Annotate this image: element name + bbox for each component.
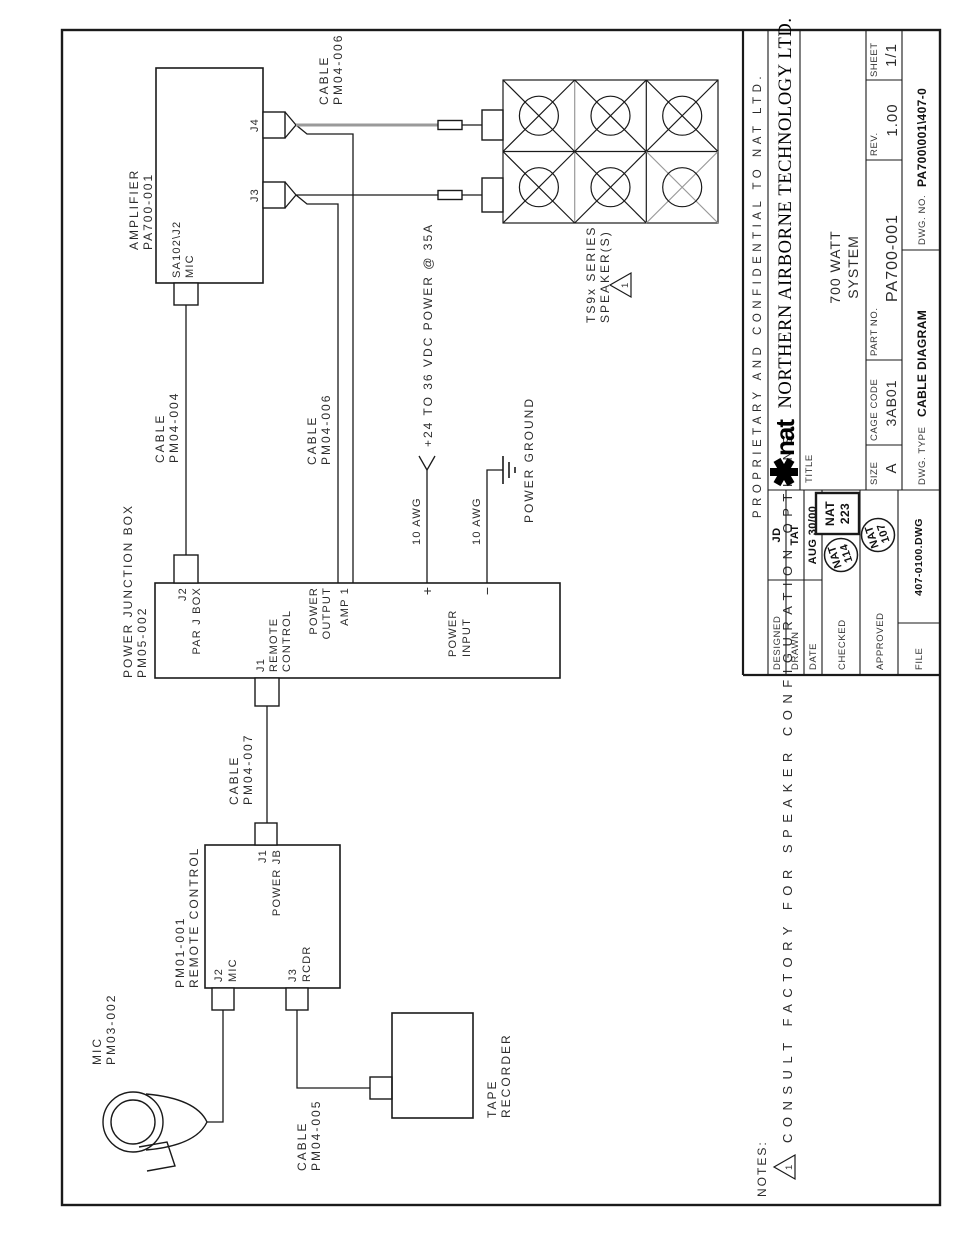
speakers-label-2: SPEAKER(S) (598, 230, 612, 323)
part-no-label: PART NO. (869, 307, 880, 356)
stamp-nat223-line1: NAT (823, 501, 837, 526)
mic-label-2: PM03-002 (104, 994, 118, 1065)
stamp-checked-nat223: NAT 223 (816, 493, 859, 534)
speaker-connector-1 (482, 110, 503, 140)
page: AMPLIFIER PA700-001 SA102\J2 MIC J3 J4 P… (0, 0, 954, 1235)
rev-label: REV. (869, 132, 880, 156)
title-block-outline (743, 30, 940, 675)
cable-pm04-006-wire-a (296, 195, 338, 583)
remote-label-2: REMOTE CONTROL (187, 847, 201, 988)
title-label: TITLE (804, 454, 815, 483)
dwg-no-value: PA700\001\407-0 (915, 88, 929, 187)
junction-box-label-1: POWER JUNCTION BOX (121, 504, 135, 678)
junction-j2-connector (174, 555, 198, 583)
amplifier-j4-connector (263, 112, 285, 138)
amplifier-mic-connector (174, 283, 198, 305)
amplifier-j3-connector (263, 182, 285, 208)
power-ground-wire (487, 470, 503, 583)
amplifier-part-label: PA700-001 (141, 173, 155, 250)
cable-pm04-006-amp-label-1: CABLE (317, 56, 331, 105)
file-label: FILE (914, 648, 925, 670)
drawing-title-2: SYSTEM (845, 235, 861, 299)
cable-pm04-007-label-1: CABLE (227, 756, 241, 805)
junction-plus-terminal: + (419, 587, 435, 595)
amplifier-j4-label: J4 (249, 118, 261, 132)
junction-j1-label-3: CONTROL (281, 610, 293, 672)
remote-j2-label-1: J2 (213, 968, 225, 982)
speakers: TS9x SERIES SPEAKER(S) 1 (482, 80, 718, 323)
size-label: SIZE (869, 461, 880, 485)
cable-pm04-006-amp-label-2: PM04-006 (331, 34, 345, 105)
company-name: NORTHERN AIRBORNE TECHNOLOGY LTD. (776, 17, 796, 408)
tape-label-1: TAPE (485, 1080, 499, 1118)
approved-label: APPROVED (875, 612, 886, 670)
cable-pm04-006-wire-b (296, 125, 353, 583)
junction-output-label-1: POWER (308, 587, 320, 635)
file-value: 407-0100.DWG (913, 518, 925, 596)
mic-cable (207, 1010, 223, 1122)
inline-splice-j3 (438, 191, 462, 200)
stamp-nat223-line2: 223 (838, 503, 852, 524)
junction-j1-connector (255, 678, 279, 706)
junction-j2-label-2: PAR J BOX (191, 587, 203, 654)
cable-pm04-004-label-1: CABLE (153, 414, 167, 463)
dwg-type-value: CABLE DIAGRAM (915, 310, 929, 417)
offpage-arrow-icon (419, 456, 435, 470)
junction-minus-terminal: − (479, 587, 495, 595)
inline-splice-j4 (438, 121, 462, 130)
drawing-sheet: AMPLIFIER PA700-001 SA102\J2 MIC J3 J4 P… (0, 0, 954, 1235)
remote-j1-label-2: POWER JB (271, 849, 283, 916)
junction-input-label-1: POWER (447, 609, 459, 657)
junction-box-label-2: PM05-002 (135, 607, 149, 678)
amplifier-j3-label: J3 (249, 188, 261, 202)
junction-input-label-2: INPUT (461, 618, 473, 657)
tape-connector (370, 1077, 392, 1099)
notes-heading: NOTES: (755, 1140, 769, 1197)
remote-j3-label-1: J3 (287, 968, 299, 982)
speaker-cones-gray (646, 152, 718, 224)
drawing-title-1: 700 WATT (827, 230, 843, 303)
remote-j2-label-2: MIC (227, 958, 239, 982)
junction-box (155, 583, 560, 678)
remote-label-1: PM01-001 (173, 917, 187, 988)
microphone: MIC PM03-002 (90, 994, 223, 1171)
amplifier: AMPLIFIER PA700-001 SA102\J2 MIC J3 J4 (127, 68, 296, 305)
mic-outer-ring (103, 1092, 163, 1152)
stamp-checked-nat114: NAT 114 (825, 539, 858, 572)
cable-pm04-006-jb-label-1: CABLE (305, 416, 319, 465)
remote-j1-label-1: J1 (257, 849, 269, 863)
cage-code-value: 3AB01 (883, 379, 899, 426)
power-supply-label: +24 TO 36 VDC POWER @ 35A (421, 223, 435, 447)
power-ground-label: POWER GROUND (522, 397, 536, 523)
remote-j2-connector (212, 988, 234, 1010)
drawn-value: TAT (789, 525, 801, 546)
speakers-label-1: TS9x SERIES (584, 226, 598, 323)
mic-label-1: MIC (90, 1037, 104, 1065)
dwg-type-label: DWG. TYPE (917, 426, 928, 485)
j4-plug-chevron (285, 112, 296, 138)
tape-label-2: RECORDER (499, 1033, 513, 1118)
awg-negative-label: 10 AWG (471, 497, 483, 545)
proprietary-note: PROPRIETARY AND CONFIDENTIAL TO NAT LTD. (752, 72, 764, 518)
drawn-label: DRAWN (790, 631, 801, 670)
size-value: A (883, 462, 900, 473)
cable-pm04-006-jb-label-2: PM04-006 (319, 394, 333, 465)
junction-output-label-2: OUTPUT (321, 587, 333, 639)
cable-diagram-canvas: AMPLIFIER PA700-001 SA102\J2 MIC J3 J4 P… (0, 0, 954, 1235)
cable-pm04-004-label-2: PM04-004 (167, 392, 181, 463)
tape-box (392, 1013, 473, 1118)
mic-inner-ring (111, 1100, 155, 1144)
remote-j3-label-2: RCDR (301, 945, 313, 982)
awg-positive-label: 10 AWG (411, 497, 423, 545)
sheet-label: SHEET (869, 42, 880, 77)
cage-code-label: CAGE CODE (869, 379, 880, 441)
amplifier-mic-conn-label-1: SA102\J2 (171, 221, 183, 278)
dwg-no-label: DWG. NO. (917, 195, 928, 245)
speakers-note-marker: 1 (620, 282, 631, 288)
nat-logo-wordmark: nat (770, 419, 800, 456)
remote-control: PM01-001 REMOTE CONTROL J1 POWER JB J2 M… (173, 823, 340, 1010)
designed-value: JD (771, 528, 783, 543)
junction-j1-label-2: REMOTE (268, 618, 280, 672)
remote-j3-connector (286, 988, 308, 1010)
cable-pm04-007-label-2: PM04-007 (241, 734, 255, 805)
stamp-approved-nat107: NAT 107 (862, 519, 895, 552)
date-label: DATE (808, 643, 819, 670)
junction-j1-label-1: J1 (255, 658, 267, 672)
rev-value: 1.00 (884, 103, 901, 136)
power-junction-box: POWER JUNCTION BOX PM05-002 J2 PAR J BOX… (121, 504, 560, 706)
cable-pm04-005-wire (297, 1010, 370, 1088)
junction-output-label-3: AMP 1 (339, 587, 351, 626)
title-block: PROPRIETARY AND CONFIDENTIAL TO NAT LTD.… (743, 17, 940, 675)
cable-pm04-005-label-2: PM04-005 (309, 1100, 323, 1171)
j3-plug-chevron (285, 182, 296, 208)
sheet-value: 1/1 (883, 43, 900, 67)
part-no-value: PA700-001 (884, 214, 901, 302)
amplifier-label: AMPLIFIER (127, 169, 141, 250)
ground-symbol-icon (503, 456, 515, 484)
junction-j2-label-1: J2 (177, 587, 189, 601)
checked-label: CHECKED (837, 619, 848, 670)
cable-pm04-005-label-1: CABLE (295, 1122, 309, 1171)
speaker-connector-2 (482, 178, 503, 212)
designed-label: DESIGNED (772, 616, 783, 670)
amplifier-mic-conn-label-2: MIC (184, 254, 196, 278)
remote-j1-connector (255, 823, 277, 845)
note-1-marker: 1 (784, 1164, 795, 1170)
tape-recorder: TAPE RECORDER (370, 1013, 513, 1118)
